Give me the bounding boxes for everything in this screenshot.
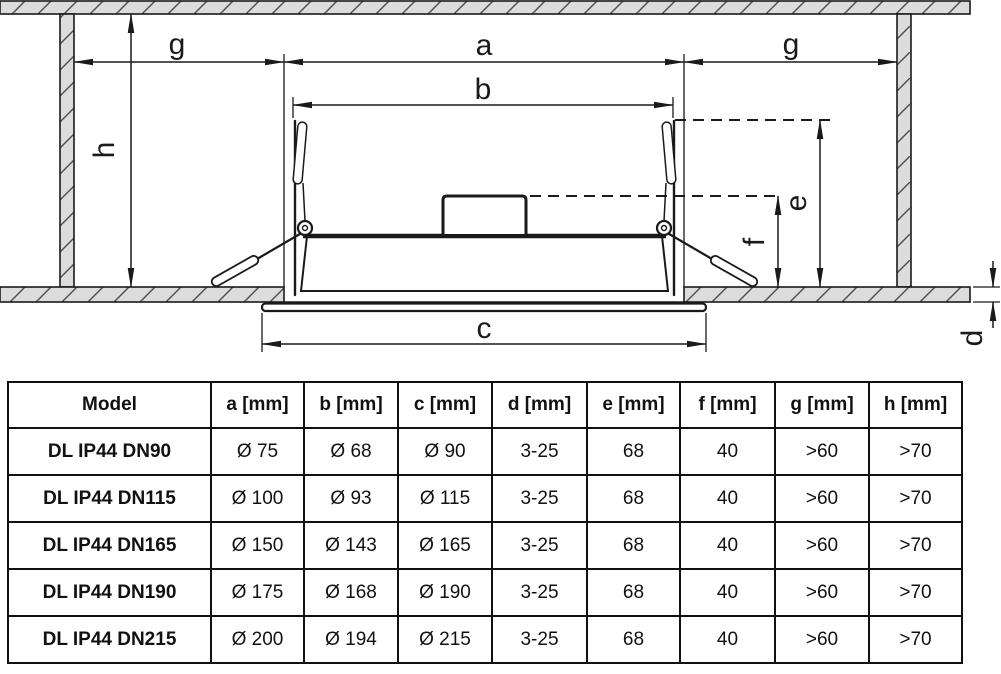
label-h: h [88,142,121,159]
value-f: 40 [680,616,775,663]
value-b: Ø 143 [304,522,398,569]
value-g: >60 [775,569,869,616]
label-f: f [738,237,771,246]
column-header-e: e [mm] [587,382,680,428]
value-a: Ø 75 [211,428,304,475]
table-row: DL IP44 DN90 Ø 75 Ø 68 Ø 90 3-25 68 40 >… [8,428,962,475]
value-b: Ø 68 [304,428,398,475]
value-g: >60 [775,475,869,522]
value-h: >70 [869,569,962,616]
value-e: 68 [587,569,680,616]
value-e: 68 [587,428,680,475]
value-d: 3-25 [492,616,587,663]
value-c: Ø 90 [398,428,492,475]
dimension-table: Model a [mm] b [mm] c [mm] d [mm] e [mm]… [7,381,963,664]
stud-right [897,14,911,287]
downlight-fixture [210,121,759,311]
spring-arm-right [664,231,712,259]
value-h: >70 [869,616,962,663]
model-name: DL IP44 DN165 [8,522,211,569]
column-header-g: g [mm] [775,382,869,428]
value-e: 68 [587,616,680,663]
value-c: Ø 115 [398,475,492,522]
stud-left [60,14,74,287]
value-g: >60 [775,616,869,663]
model-name: DL IP44 DN190 [8,569,211,616]
column-header-d: d [mm] [492,382,587,428]
label-e: e [780,195,813,212]
spring-arm-left [257,231,305,259]
value-e: 68 [587,522,680,569]
value-b: Ø 168 [304,569,398,616]
value-h: >70 [869,522,962,569]
model-name: DL IP44 DN115 [8,475,211,522]
value-a: Ø 100 [211,475,304,522]
value-e: 68 [587,475,680,522]
value-f: 40 [680,428,775,475]
model-name: DL IP44 DN90 [8,428,211,475]
value-d: 3-25 [492,428,587,475]
label-d: d [956,330,989,347]
value-h: >70 [869,428,962,475]
value-c: Ø 215 [398,616,492,663]
value-f: 40 [680,569,775,616]
column-header-model: Model [8,382,211,428]
installation-diagram: g a g b c h e f d [0,0,1001,378]
ceiling-slab [0,1,970,14]
table-header-row: Model a [mm] b [mm] c [mm] d [mm] e [mm]… [8,382,962,428]
reference-lines [530,120,830,196]
table-row: DL IP44 DN215 Ø 200 Ø 194 Ø 215 3-25 68 … [8,616,962,663]
value-b: Ø 194 [304,616,398,663]
spring-arm-tip-right [709,254,759,287]
value-f: 40 [680,522,775,569]
value-d: 3-25 [492,522,587,569]
value-h: >70 [869,475,962,522]
value-a: Ø 200 [211,616,304,663]
column-header-c: c [mm] [398,382,492,428]
value-c: Ø 190 [398,569,492,616]
value-d: 3-25 [492,569,587,616]
table-row: DL IP44 DN115 Ø 100 Ø 93 Ø 115 3-25 68 4… [8,475,962,522]
table-row: DL IP44 DN165 Ø 150 Ø 143 Ø 165 3-25 68 … [8,522,962,569]
driver-box [443,196,526,234]
spring-arm-tip-left [210,254,260,287]
lamp-body [301,236,668,291]
trim-flange [262,304,706,312]
label-b: b [475,73,492,106]
ceiling-board-left [0,287,284,302]
value-g: >60 [775,522,869,569]
label-a: a [476,29,493,62]
spring-link-right [664,183,666,221]
label-g-left: g [169,28,186,61]
spring-pivot-right [657,221,671,235]
label-c: c [477,312,492,345]
downlight-spec-sheet: g a g b c h e f d Model a [mm] b [mm] c … [0,0,1001,674]
model-name: DL IP44 DN215 [8,616,211,663]
label-g-right: g [783,28,800,61]
value-g: >60 [775,428,869,475]
spring-link-left [303,183,305,221]
value-c: Ø 165 [398,522,492,569]
value-a: Ø 150 [211,522,304,569]
table-row: DL IP44 DN190 Ø 175 Ø 168 Ø 190 3-25 68 … [8,569,962,616]
column-header-a: a [mm] [211,382,304,428]
value-f: 40 [680,475,775,522]
column-header-b: b [mm] [304,382,398,428]
value-d: 3-25 [492,475,587,522]
ceiling-board-right [684,287,970,302]
spring-pivot-left [298,221,312,235]
value-a: Ø 175 [211,569,304,616]
value-b: Ø 93 [304,475,398,522]
column-header-h: h [mm] [869,382,962,428]
column-header-f: f [mm] [680,382,775,428]
